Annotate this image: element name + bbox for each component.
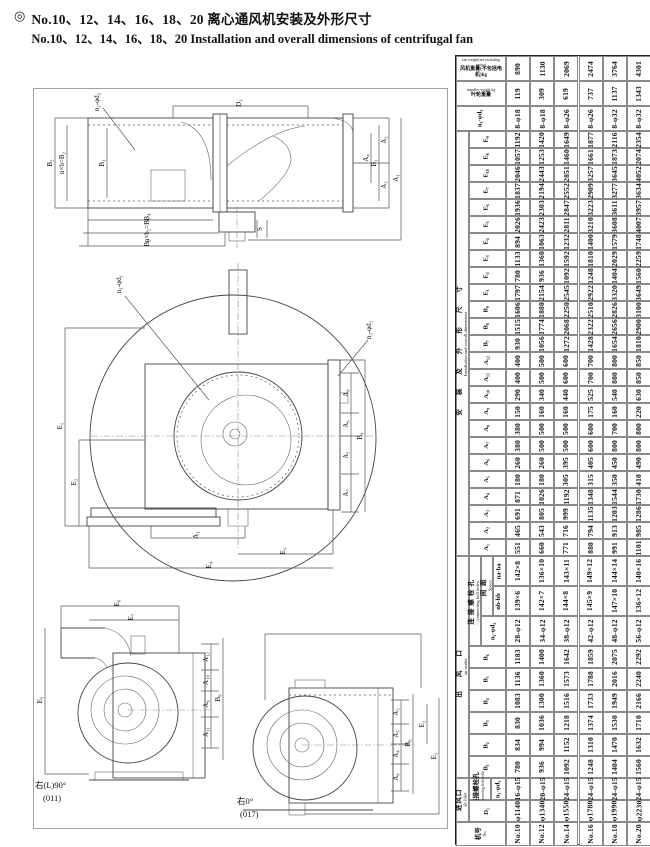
cell-E8-No.12: 1253	[530, 148, 554, 165]
cell-B6-No.18: 2075	[603, 646, 627, 668]
dim-label-E₄: E₄	[205, 561, 213, 568]
dim-label-E₂: E₂	[70, 478, 78, 485]
cell-E8-No.10: 1057	[506, 148, 530, 165]
cell-fan-weight-No.18: 3764	[603, 56, 627, 81]
cell-E6-No.20: 3957	[627, 199, 650, 216]
cell-n3-d3-No.10: 8-φ18	[506, 106, 530, 131]
dimension-labels: n₂-φd₂D₁B₃n×b=B₂B₁A₄B₁A₂A₃A₁B₄n×b₂=B₅B₆S…	[35, 92, 438, 819]
cell-A10-No.16: 525	[579, 386, 603, 403]
cell-B1-No.14: 1092	[554, 756, 578, 778]
cell-n2-d2-No.20: 56-φ12	[627, 616, 650, 646]
cell-n1-d1-No.18: 24-φ15	[603, 778, 627, 800]
cell-B2-No.10: 834	[506, 734, 530, 756]
dim-label-E₆: E₆	[113, 599, 121, 606]
cell-A8-No.20: 800	[627, 420, 650, 437]
cell-impeller-weight-No.18: 1137	[603, 81, 627, 106]
table-band-D1: D₁φ1140φ1340φ1550φ1780φ1990φ2230	[456, 800, 649, 822]
field-label-E7: E₇	[469, 182, 506, 199]
cell-n2-d2-No.18: 48-φ12	[603, 616, 627, 646]
cell-E3-No.18: 2029	[603, 250, 627, 267]
dim-label-A₃: A₃	[392, 708, 400, 716]
group-header-bolt-holes: 连接螺栓孔connecting bolt holes	[469, 556, 481, 646]
circle-bullet-icon: ◎	[14, 8, 25, 24]
field-label-A10: A₁₀	[469, 386, 506, 403]
cell-E5-No.12: 2423	[530, 216, 554, 233]
cell-A10-No.12: 340	[530, 386, 554, 403]
cell-A6-No.16: 405	[579, 454, 603, 471]
cell-D1-No.16: φ1780	[579, 800, 603, 822]
cell-n1-d1-No.10: 16-φ15	[506, 778, 530, 800]
cell-D1-No.20: φ2230	[627, 800, 650, 822]
cell-space-nb-No.20: 136×12	[627, 586, 650, 616]
cell-A10-No.20: 630	[627, 386, 650, 403]
cell-E10-No.12: 2443	[530, 165, 554, 182]
cell-B5-No.10: 1136	[506, 668, 530, 690]
cell-fan-no-No.14: No.14	[554, 822, 578, 846]
dim-label-E₃: E₃	[279, 547, 287, 554]
dim-label-A₆: A₆	[342, 420, 350, 428]
cell-A5-No.14: 305	[554, 471, 578, 488]
cell-B8-No.16: 2322	[579, 318, 603, 335]
cell-A7-No.14: 500	[554, 437, 578, 454]
cell-E3-No.16: 1810	[579, 250, 603, 267]
cell-B5-No.16: 1788	[579, 668, 603, 690]
table-band-E7: E₇183721942552290932773634	[456, 182, 649, 199]
table-band-A11: A₁₁400500600700800850	[456, 369, 649, 386]
cell-A7-No.18: 800	[603, 437, 627, 454]
cell-E4-No.20: 1748	[627, 233, 650, 250]
cell-fan-weight-No.20: 4301	[627, 56, 650, 81]
cell-A2-No.20: 985	[627, 522, 650, 539]
cell-A7-No.12: 500	[530, 437, 554, 454]
cell-A9-No.10: 150	[506, 403, 530, 420]
dim-label-右(L)90°: 右(L)90°	[35, 780, 66, 790]
field-label-E10: E₁₀	[469, 165, 506, 182]
cell-B9-No.18: 2826	[603, 301, 627, 318]
cell-B9-No.10: 1606	[506, 301, 530, 318]
cell-A1-No.14: 771	[554, 539, 578, 556]
cell-fan-no-No.10: No.10	[506, 822, 530, 846]
cell-A6-No.12: 260	[530, 454, 554, 471]
cell-n1-d1-No.16: 24-φ15	[579, 778, 603, 800]
cell-A11-No.10: 400	[506, 369, 530, 386]
group-header-install: 安装及外形尺寸Installation and overall dimensio…	[456, 131, 469, 556]
table-band-B8: B₈151517742068232226562900	[456, 318, 649, 335]
field-label-n1-d1: 连接螺栓孔Connecting bolt hole	[469, 778, 491, 800]
field-label-E6: E₆	[469, 199, 506, 216]
cell-B4-No.14: 1516	[554, 690, 578, 712]
cell-space-na-No.12: 136×10	[530, 556, 554, 586]
cell-impeller-weight-No.20: 1343	[627, 81, 650, 106]
cell-B7-No.12: 1056	[530, 335, 554, 352]
field-label-n2-d2: n₂-φd₂	[481, 616, 506, 646]
cell-A1-No.18: 991	[603, 539, 627, 556]
cell-A9-No.16: 175	[579, 403, 603, 420]
cell-B7-No.16: 1428	[579, 335, 603, 352]
dim-label-E₅: E₅	[36, 696, 44, 703]
cell-n3-d3-No.16: 8-φ26	[579, 106, 603, 131]
field-label-A3: A₃	[469, 505, 506, 522]
cell-D1-No.14: φ1550	[554, 800, 578, 822]
cell-E7-No.18: 3277	[603, 182, 627, 199]
cell-B4-No.16: 1733	[579, 690, 603, 712]
field-label-space-na: na-ba	[493, 556, 506, 586]
group-header-space: 间距Space	[481, 556, 493, 616]
cell-A3-No.14: 999	[554, 505, 578, 522]
cell-E4-No.14: 1232	[554, 233, 578, 250]
cell-B8-No.10: 1515	[506, 318, 530, 335]
cell-space-nb-No.10: 139×6	[506, 586, 530, 616]
dim-label-B₉: B₉	[214, 694, 222, 702]
cell-B1-No.18: 1404	[603, 756, 627, 778]
cell-B4-No.18: 1949	[603, 690, 627, 712]
cell-A3-No.16: 1135	[579, 505, 603, 522]
field-label-B6: B₆	[469, 646, 506, 668]
cell-A8-No.14: 500	[554, 420, 578, 437]
table-band-A9: A₉150160160175160220	[456, 403, 649, 420]
cell-E7-No.10: 1837	[506, 182, 530, 199]
cell-B7-No.10: 930	[506, 335, 530, 352]
cell-E8-No.14: 1460	[554, 148, 578, 165]
cell-space-nb-No.14: 144×8	[554, 586, 578, 616]
cell-A7-No.16: 600	[579, 437, 603, 454]
table-band-E10: E₁₀204624432851325736454052	[456, 165, 649, 182]
dim-label-(017): (017)	[240, 809, 259, 819]
table-band-B4: B₄108313001516173319492166	[456, 690, 649, 712]
dim-label-(011): (011)	[43, 793, 61, 803]
table-band-E6: E₆193623032847322336113957	[456, 199, 649, 216]
cell-B3-No.20: 1710	[627, 712, 650, 734]
cell-n1-d1-No.12: 20-φ15	[530, 778, 554, 800]
dim-label-A₅: A₅	[342, 451, 350, 459]
cell-A4-No.12: 1026	[530, 488, 554, 505]
cell-impeller-weight-No.14: 619	[554, 81, 578, 106]
field-label-n1-d1: n₁-φd₁	[491, 778, 506, 800]
dim-label-n×b₂=B₅: n×b₂=B₅	[143, 217, 151, 242]
field-label-A2: A₂	[469, 522, 506, 539]
field-label-A6: A₆	[469, 454, 506, 471]
cell-B8-No.20: 2900	[627, 318, 650, 335]
cell-A6-No.20: 490	[627, 454, 650, 471]
cell-E7-No.12: 2194	[530, 182, 554, 199]
cell-B2-No.16: 1310	[579, 734, 603, 756]
dim-label-A₄: A₄	[392, 750, 400, 758]
cell-fan-weight-No.10: 890	[506, 56, 530, 81]
cell-n3-d3-No.14: 8-φ26	[554, 106, 578, 131]
table-band-B3: B₃83010361218137415301710	[456, 712, 649, 734]
cell-A9-No.20: 220	[627, 403, 650, 420]
field-label-B4: B₄	[469, 690, 506, 712]
dim-label-B₁: B₁	[98, 159, 106, 166]
cell-B6-No.20: 2292	[627, 646, 650, 668]
cell-B6-No.12: 1400	[530, 646, 554, 668]
cell-E2-No.12: 936	[530, 267, 554, 284]
table-band-A3: A₃691805999113512031286	[456, 505, 649, 522]
cell-space-na-No.16: 149×12	[579, 556, 603, 586]
cell-fan-weight-No.12: 1130	[530, 56, 554, 81]
dim-label-A₁₁: A₁₁	[202, 727, 210, 737]
dim-label-A₃: A₃	[380, 181, 388, 189]
cell-n2-d2-No.16: 42-φ12	[579, 616, 603, 646]
cell-E10-No.16: 3257	[579, 165, 603, 182]
dim-label-A₂: A₂	[380, 136, 388, 144]
cell-E1-No.20: 3649	[627, 284, 650, 301]
cell-A6-No.18: 450	[603, 454, 627, 471]
cell-E4-No.12: 1063	[530, 233, 554, 250]
field-label-B7: B₇	[469, 335, 506, 352]
fan-drawings-svg: n₂-φd₂D₁B₃n×b=B₂B₁A₄B₁A₂A₃A₁B₄n×b₂=B₅B₆S…	[33, 88, 448, 830]
cell-E1-No.18: 3320	[603, 284, 627, 301]
cell-A3-No.18: 1203	[603, 505, 627, 522]
table-band-E3: E₃113313601592181020292259	[456, 250, 649, 267]
cell-B9-No.16: 2510	[579, 301, 603, 318]
dim-label-B₈: B₈	[404, 739, 412, 747]
cell-E2-No.18: 1404	[603, 267, 627, 284]
dim-label-A₁: A₁	[192, 531, 200, 539]
catalog-page: { "title": { "bullet": "◎", "line1_cn": …	[0, 0, 650, 847]
dim-label-B₃: B₃	[46, 159, 54, 167]
title-line-cn: No.10、12、14、16、18、20 离心通风机安装及外形尺寸	[31, 8, 473, 28]
cell-E9-No.20: 2354	[627, 131, 650, 148]
cell-B7-No.14: 1272	[554, 335, 578, 352]
table-band-A7: A₇380500500600800800	[456, 437, 649, 454]
field-label-B8: B₈	[469, 318, 506, 335]
cell-B1-No.10: 780	[506, 756, 530, 778]
dim-label-n×b=B₂: n×b=B₂	[58, 151, 66, 174]
cell-E6-No.12: 2303	[530, 199, 554, 216]
cell-E3-No.12: 1360	[530, 250, 554, 267]
dim-label-E₂: E₂	[418, 720, 426, 727]
cell-A11-No.20: 850	[627, 369, 650, 386]
cell-A12-No.16: 700	[579, 352, 603, 369]
table-band-A4: A₄87110261192134815441730	[456, 488, 649, 505]
cell-E1-No.12: 2154	[530, 284, 554, 301]
cell-n1-d1-No.20: 24-φ15	[627, 778, 650, 800]
cell-E4-No.18: 1579	[603, 233, 627, 250]
cell-A3-No.20: 1286	[627, 505, 650, 522]
field-label-E3: E₃	[469, 250, 506, 267]
table-band-A6: A₆260260395405450490	[456, 454, 649, 471]
cell-n2-d2-No.12: 34-φ12	[530, 616, 554, 646]
cell-E1-No.14: 2545	[554, 284, 578, 301]
cell-B7-No.20: 1810	[627, 335, 650, 352]
cell-A12-No.12: 500	[530, 352, 554, 369]
cell-B8-No.14: 2068	[554, 318, 578, 335]
cell-D1-No.18: φ1990	[603, 800, 627, 822]
title-lines: No.10、12、14、16、18、20 离心通风机安装及外形尺寸 No.10、…	[31, 8, 473, 47]
cell-B3-No.18: 1530	[603, 712, 627, 734]
cell-B8-No.18: 2656	[603, 318, 627, 335]
table-band-E8: E₈105712531460166118732074	[456, 148, 649, 165]
field-label-E4: E₄	[469, 233, 506, 250]
field-label-n3-d3: n₃-φd₃	[456, 106, 506, 131]
cell-A5-No.16: 315	[579, 471, 603, 488]
right-L90-view	[45, 606, 223, 780]
cell-E8-No.20: 2074	[627, 148, 650, 165]
dim-label-A₅: A₅	[392, 730, 400, 738]
cell-A4-No.16: 1348	[579, 488, 603, 505]
page-title: ◎ No.10、12、14、16、18、20 离心通风机安装及外形尺寸 No.1…	[14, 8, 473, 47]
dim-label-n₂-φd₂: n₂-φd₂	[93, 92, 101, 111]
cell-A2-No.18: 913	[603, 522, 627, 539]
field-label-E9: E₉	[469, 131, 506, 148]
cell-n2-d2-No.10: 28-φ12	[506, 616, 530, 646]
right-0-view	[243, 634, 439, 815]
cell-E9-No.12: 1420	[530, 131, 554, 148]
table-band-A8: A₈380500500600700800	[456, 420, 649, 437]
table-band-n1-d1: 连接螺栓孔Connecting bolt holen₁-φd₁16-φ1520-…	[456, 778, 649, 800]
cell-E10-No.10: 2046	[506, 165, 530, 182]
cell-A4-No.14: 1192	[554, 488, 578, 505]
cell-n3-d3-No.20: 8-φ32	[627, 106, 650, 131]
cell-A3-No.10: 691	[506, 505, 530, 522]
cell-A11-No.16: 700	[579, 369, 603, 386]
cell-E4-No.16: 1400	[579, 233, 603, 250]
dim-label-B₆: B₆	[143, 239, 151, 247]
cell-E3-No.20: 2259	[627, 250, 650, 267]
cell-B4-No.10: 1083	[506, 690, 530, 712]
cell-A5-No.18: 350	[603, 471, 627, 488]
cell-B8-No.12: 1774	[530, 318, 554, 335]
cell-space-na-No.18: 144×14	[603, 556, 627, 586]
cell-A8-No.18: 700	[603, 420, 627, 437]
cell-A11-No.14: 600	[554, 369, 578, 386]
cell-space-na-No.20: 140×16	[627, 556, 650, 586]
drawing-area: n₂-φd₂D₁B₃n×b=B₂B₁A₄B₁A₂A₃A₁B₄n×b₂=B₅B₆S…	[33, 88, 448, 835]
cell-B1-No.20: 1560	[627, 756, 650, 778]
cell-A9-No.12: 160	[530, 403, 554, 420]
table-band-E1: E₁179721542545292233203649	[456, 284, 649, 301]
cell-E5-No.14: 2811	[554, 216, 578, 233]
dim-label-A₁₂: A₁₂	[202, 651, 210, 661]
cell-B3-No.10: 830	[506, 712, 530, 734]
cell-E2-No.10: 780	[506, 267, 530, 284]
cell-A12-No.10: 400	[506, 352, 530, 369]
cell-A5-No.10: 180	[506, 471, 530, 488]
cell-A1-No.16: 880	[579, 539, 603, 556]
table-band-B9: B₉160618802250251028263100	[456, 301, 649, 318]
field-label-A1: A₁	[469, 539, 506, 556]
cell-E10-No.18: 3645	[603, 165, 627, 182]
dim-label-E₇: E₇	[127, 613, 135, 620]
table-band-E2: E₂7809361092124814041560	[456, 267, 649, 284]
cell-B2-No.14: 1152	[554, 734, 578, 756]
cell-E10-No.14: 2851	[554, 165, 578, 182]
dim-label-A₉: A₉	[202, 700, 210, 708]
cell-B3-No.12: 1036	[530, 712, 554, 734]
cell-E3-No.10: 1133	[506, 250, 530, 267]
cell-E5-No.20: 4007	[627, 216, 650, 233]
cell-A8-No.16: 600	[579, 420, 603, 437]
cell-E7-No.16: 2909	[579, 182, 603, 199]
table-band-E4: E₄89410631232140015791748	[456, 233, 649, 250]
cell-E1-No.10: 1797	[506, 284, 530, 301]
cell-E2-No.20: 1560	[627, 267, 650, 284]
dim-label-A₁: A₁	[392, 174, 400, 182]
table-band-A2: A₂465543716794913985	[456, 522, 649, 539]
cell-E7-No.14: 2552	[554, 182, 578, 199]
cell-A1-No.20: 1101	[627, 539, 650, 556]
field-label-fan-no: 机号No.	[456, 822, 506, 846]
cell-B2-No.20: 1632	[627, 734, 650, 756]
cell-E5-No.16: 3210	[579, 216, 603, 233]
volute-front-view	[65, 263, 376, 581]
cell-impeller-weight-No.10: 119	[506, 81, 530, 106]
cell-E6-No.16: 3223	[579, 199, 603, 216]
cell-A6-No.10: 260	[506, 454, 530, 471]
dim-label-n₃-φd₃: n₃-φd₃	[365, 320, 373, 339]
cell-B3-No.16: 1374	[579, 712, 603, 734]
cell-A7-No.20: 800	[627, 437, 650, 454]
table-band-fan-no: 机号No.No.10No.12No.14No.16No.18No.20	[456, 822, 649, 846]
field-label-fan-weight: 风机重量(不包括电机)kgfan weight(not including mo…	[456, 56, 506, 81]
table-band-E9: E₉119214201649187721162354	[456, 131, 649, 148]
cell-A12-No.18: 800	[603, 352, 627, 369]
cell-n3-d3-No.18: 8-φ32	[603, 106, 627, 131]
cell-E9-No.18: 2116	[603, 131, 627, 148]
field-label-B2: B₂	[469, 734, 506, 756]
cell-A10-No.10: 290	[506, 386, 530, 403]
cell-fan-weight-No.14: 2069	[554, 56, 578, 81]
dim-label-A₄: A₄	[362, 154, 370, 162]
cell-E6-No.18: 3611	[603, 199, 627, 216]
cell-E9-No.14: 1649	[554, 131, 578, 148]
table-band-B5: B₅113613601573178820162240	[456, 668, 649, 690]
cell-E7-No.20: 3634	[627, 182, 650, 199]
field-label-E1: E₁	[469, 284, 506, 301]
dim-label-A₈: A₈	[392, 773, 400, 781]
field-label-space-nb: nb-bb	[493, 586, 506, 616]
cell-D1-No.10: φ1140	[506, 800, 530, 822]
cell-B5-No.14: 1573	[554, 668, 578, 690]
cell-E5-No.10: 2026	[506, 216, 530, 233]
cell-impeller-weight-No.16: 737	[579, 81, 603, 106]
cell-E9-No.10: 1192	[506, 131, 530, 148]
cell-E2-No.14: 1092	[554, 267, 578, 284]
title-line-en: No.10、12、14、16、18、20 Installation and ov…	[31, 28, 473, 47]
cell-B4-No.12: 1300	[530, 690, 554, 712]
cell-B1-No.16: 1248	[579, 756, 603, 778]
table-band-n3-d3: n₃-φd₃8-φ188-φ188-φ268-φ268-φ328-φ32	[456, 106, 649, 131]
dim-label-n₁-φd₁: n₁-φd₁	[115, 275, 123, 293]
cell-A7-No.10: 380	[506, 437, 530, 454]
cell-E8-No.16: 1661	[579, 148, 603, 165]
dim-label-E₁: E₁	[430, 753, 438, 760]
field-label-impeller-weight: 叶轮重量impeller weight kg	[456, 81, 506, 106]
cell-B6-No.16: 1859	[579, 646, 603, 668]
dim-label-E₁: E₁	[56, 423, 64, 430]
cell-A12-No.14: 600	[554, 352, 578, 369]
field-label-A4: A₄	[469, 488, 506, 505]
field-label-A5: A₅	[469, 471, 506, 488]
cell-E5-No.18: 3608	[603, 216, 627, 233]
cell-A6-No.14: 395	[554, 454, 578, 471]
field-label-E8: E₈	[469, 148, 506, 165]
field-label-E2: E₂	[469, 267, 506, 284]
dim-label-A₈: A₈	[342, 389, 350, 397]
cell-A4-No.20: 1730	[627, 488, 650, 505]
cell-E9-No.16: 1877	[579, 131, 603, 148]
cell-B5-No.18: 2016	[603, 668, 627, 690]
cell-B9-No.20: 3100	[627, 301, 650, 318]
field-label-A11: A₁₁	[469, 369, 506, 386]
cell-fan-no-No.20: No.20	[627, 822, 650, 846]
table-band-impeller-weight: 叶轮重量impeller weight kg119309619737113713…	[456, 81, 649, 106]
table-band-A12: A₁₂400500600700800850	[456, 352, 649, 369]
cell-E8-No.18: 1873	[603, 148, 627, 165]
cell-E6-No.10: 1936	[506, 199, 530, 216]
cell-A10-No.18: 540	[603, 386, 627, 403]
